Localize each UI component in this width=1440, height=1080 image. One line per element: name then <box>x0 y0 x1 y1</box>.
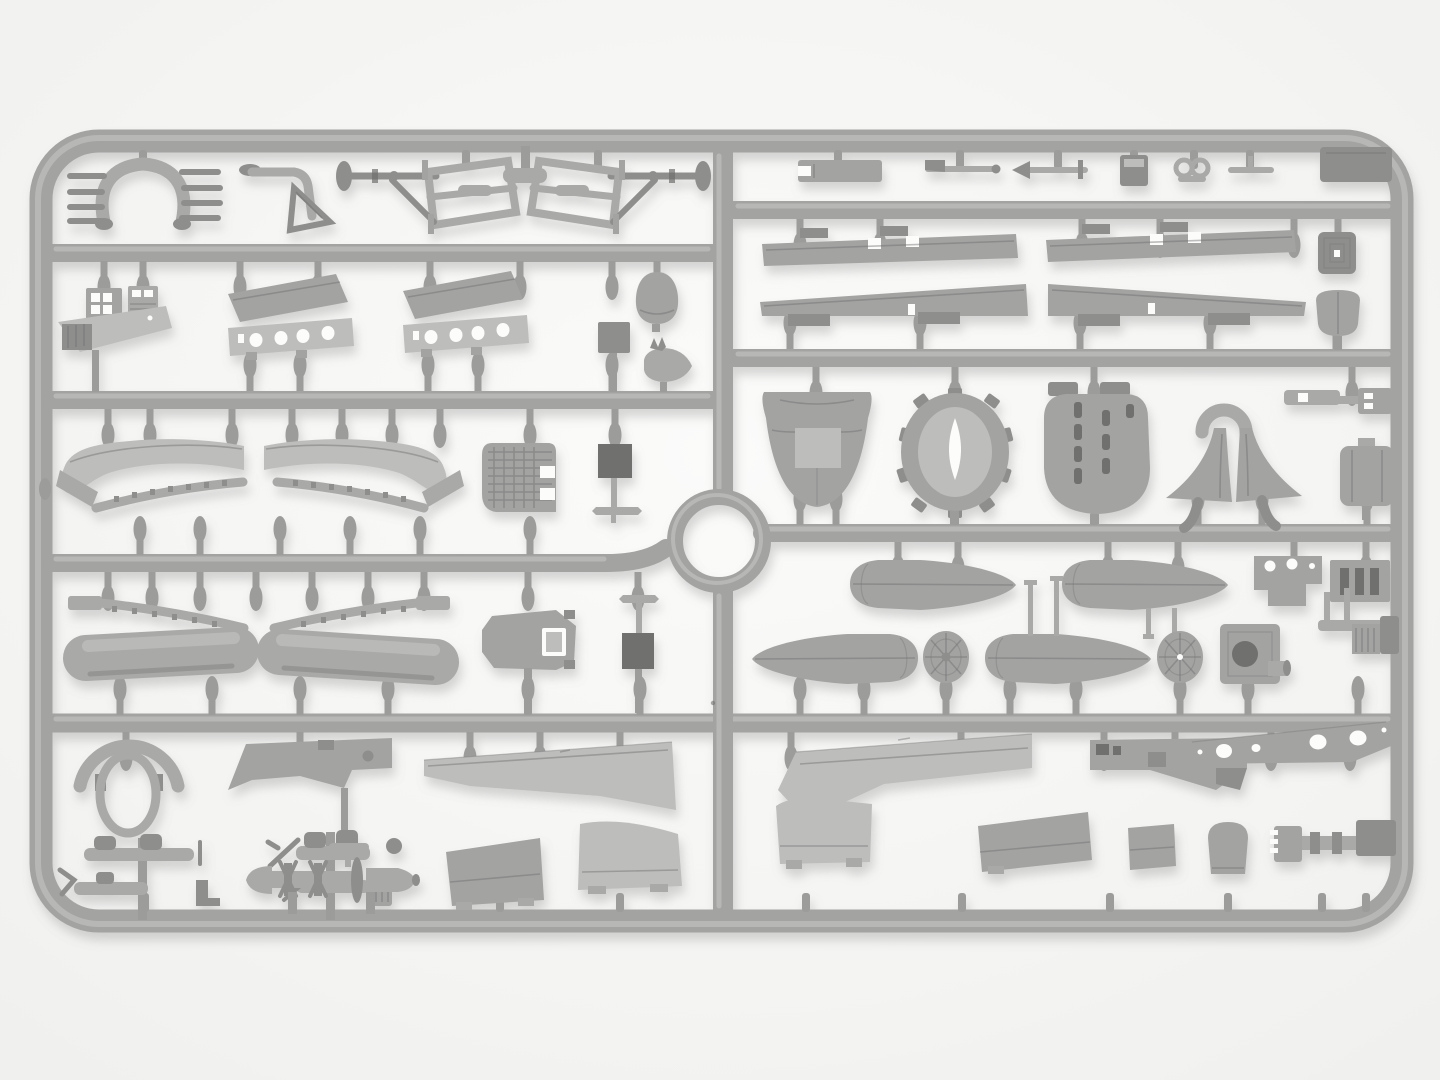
spoked-wheel-b <box>1157 631 1203 683</box>
wing-skin-cylinder-right <box>280 640 436 678</box>
corner-plate <box>1320 147 1392 182</box>
wing-tip-panel-c <box>776 798 872 869</box>
louvered-cowl-panel <box>1044 382 1150 524</box>
ejector-mark <box>711 701 715 705</box>
photo-canvas <box>0 0 1440 1080</box>
strut-bar-forked <box>798 160 882 182</box>
frame-nub <box>39 478 51 500</box>
tombstone-panel <box>1208 822 1248 874</box>
wing-skin-cylinder-left <box>86 638 236 674</box>
sprue-photo <box>0 0 1440 1080</box>
radiator-grille-plate <box>1318 232 1356 274</box>
small-block <box>1120 155 1148 186</box>
radiator-core-block <box>482 443 556 512</box>
access-panel-small <box>1128 824 1176 870</box>
spoked-wheel-a <box>923 631 969 683</box>
wing-tip-panel-b <box>578 822 682 894</box>
